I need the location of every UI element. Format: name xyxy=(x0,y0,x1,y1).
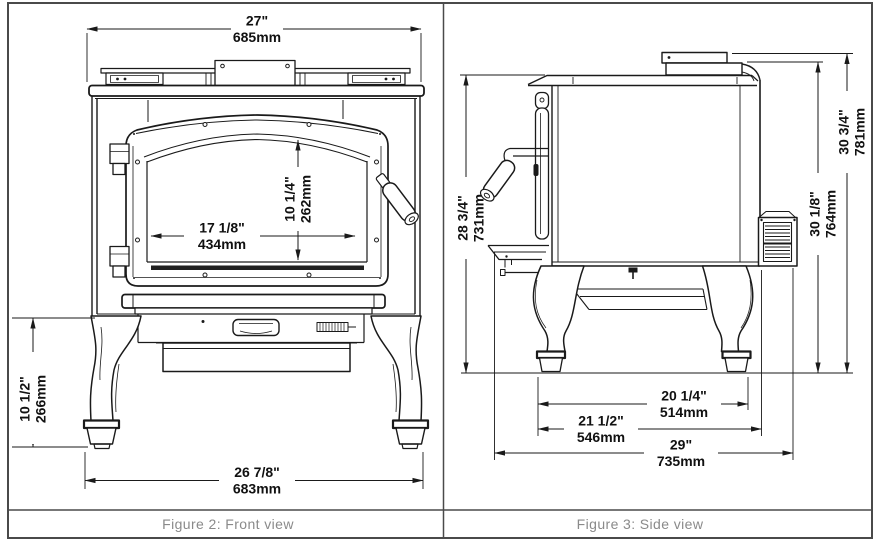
dim-label-glass-height-in: 10 1/4" xyxy=(282,176,298,222)
stove-top-plate xyxy=(89,86,424,97)
side-view-caption: Figure 3: Side view xyxy=(577,516,704,532)
dim-label-overall-height-mm: 781mm xyxy=(852,108,868,156)
dim-label-top-width-mm: 685mm xyxy=(233,29,281,45)
dim-label-height-flue-mm: 764mm xyxy=(823,190,839,238)
dim-label-leg-spacing-mm: 514mm xyxy=(660,404,708,420)
dim-label-overall-depth-mm: 735mm xyxy=(657,453,705,469)
dim-label-body-depth-in: 21 1/2" xyxy=(578,413,624,429)
stove-dimension-diagram: 27" 685mm xyxy=(0,0,886,554)
dim-label-base-width-in: 26 7/8" xyxy=(234,464,280,480)
dim-label-glass-height-mm: 262mm xyxy=(298,175,314,223)
air-wash-slot xyxy=(151,266,364,271)
dim-label-base-width-mm: 683mm xyxy=(233,481,281,497)
dim-label-top-width-in: 27" xyxy=(246,13,268,29)
dim-label-overall-height-in: 30 3/4" xyxy=(836,109,852,155)
dim-label-leg-spacing-in: 20 1/4" xyxy=(661,388,707,404)
dim-label-height-flue-in: 30 1/8" xyxy=(807,191,823,237)
dim-label-glass-width-mm: 434mm xyxy=(198,236,246,252)
dim-label-leg-height-mm: 266mm xyxy=(33,375,49,423)
dim-label-leg-height-in: 10 1/2" xyxy=(17,376,33,422)
dim-label-height-front-in: 28 3/4" xyxy=(455,195,471,241)
stove-door xyxy=(110,115,421,286)
door-latch xyxy=(534,164,539,176)
dim-label-glass-width-in: 17 1/8" xyxy=(199,220,245,236)
blower-box xyxy=(759,212,798,267)
dim-label-overall-depth-in: 29" xyxy=(670,437,692,453)
side-door-edge xyxy=(534,93,549,240)
dim-label-body-depth-mm: 546mm xyxy=(577,429,625,445)
diagram-canvas: 27" 685mm xyxy=(0,0,886,554)
front-view-caption: Figure 2: Front view xyxy=(162,516,294,532)
dim-label-height-front-mm: 731mm xyxy=(471,194,487,242)
pedestal xyxy=(163,343,350,372)
